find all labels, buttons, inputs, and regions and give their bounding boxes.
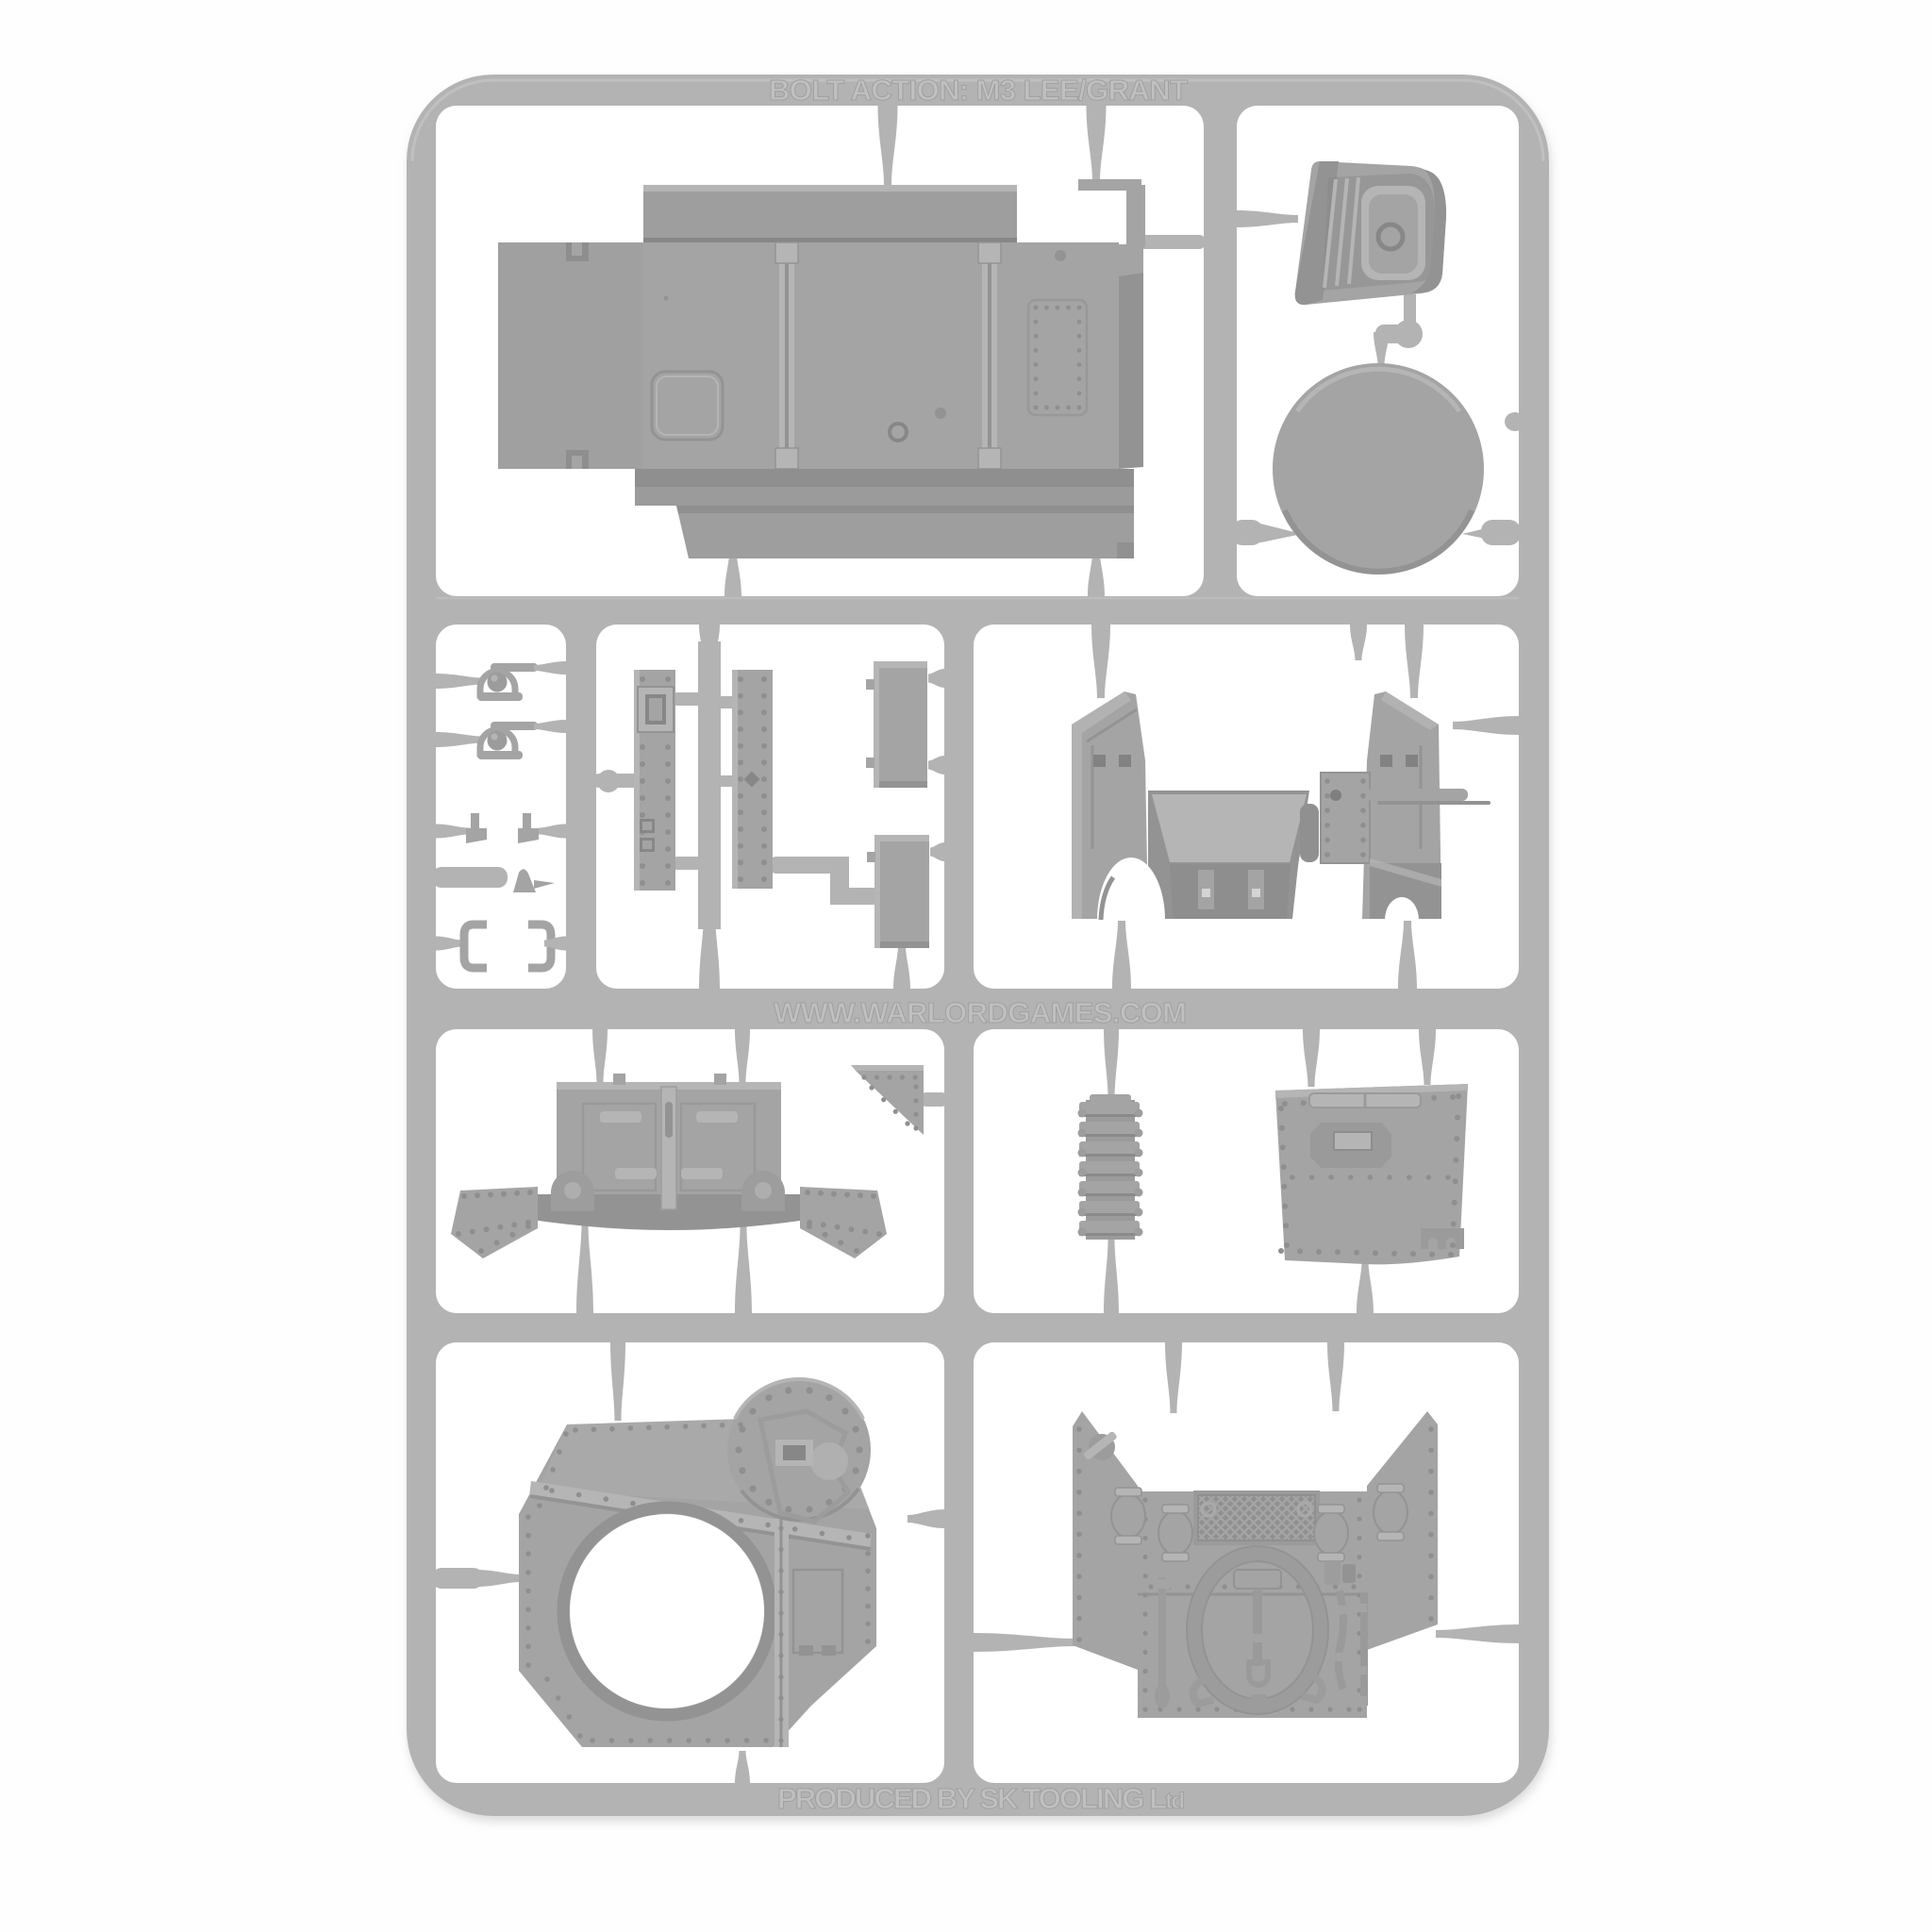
svg-text:WWW.WARLORDGAMES.COM: WWW.WARLORDGAMES.COM: [774, 996, 1189, 1029]
svg-text:BOLT ACTION: M3 LEE/GRANT: BOLT ACTION: M3 LEE/GRANT: [769, 74, 1190, 107]
svg-text:PRODUCED BY SK TOOLING Ltd: PRODUCED BY SK TOOLING Ltd: [777, 1782, 1187, 1815]
